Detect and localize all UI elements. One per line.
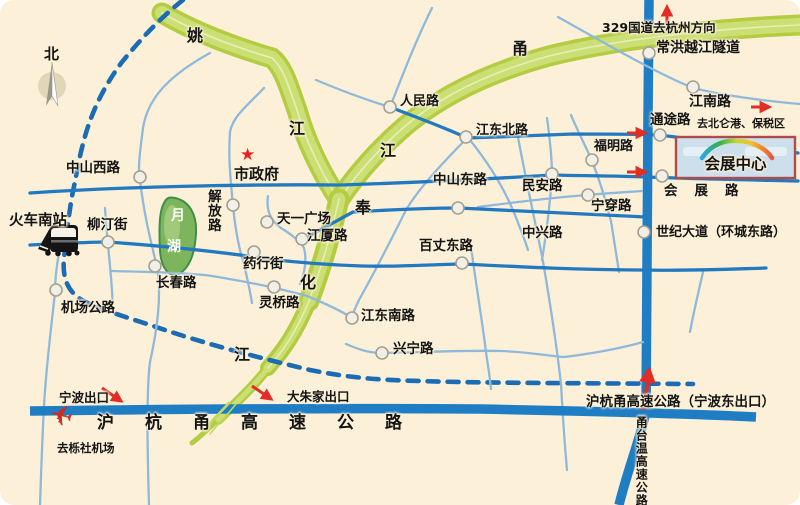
river-label-yao-jiang: 江: [289, 120, 305, 138]
label-ningchuan-road: 宁穿路: [591, 199, 632, 214]
river-label-yao: 姚: [187, 27, 203, 45]
label-g329-to-hangzhou: 329国道去杭州方向: [602, 21, 716, 35]
label-to-lishe-airport: 去栎社机场: [57, 442, 115, 455]
label-zhongshanxi-road: 中山西路: [66, 161, 120, 176]
road-north-riverbank-stub: [390, 8, 432, 107]
river-label-yong-jiang: 江: [380, 142, 396, 160]
road-jiangdong-diagonal: [470, 140, 528, 250]
road-node: [261, 216, 273, 228]
label-exhibition-center: 会展中心: [676, 156, 795, 173]
road-east-vertical-stub: [471, 247, 491, 389]
north-label: 北: [44, 46, 59, 63]
road-east-of-expressway-stub: [690, 272, 703, 332]
road-node: [376, 347, 388, 359]
road-node: [687, 81, 699, 93]
ningbo-exhibition-center-map: 北 姚 江 甬 江 奉 化 江 329国道去杭州方向 常洪越江隧道 人民路 江南…: [0, 0, 800, 505]
road-node: [586, 154, 598, 166]
road-node: [638, 226, 650, 238]
river-label-feng: 奉: [355, 199, 371, 217]
label-moon-lake-yue: 月: [171, 209, 185, 224]
label-shiji-avenue: 世纪大道（环城东路）: [656, 226, 786, 240]
label-tongtu-road: 通途路: [650, 113, 691, 128]
road-node: [134, 171, 146, 183]
label-yaohang-street: 药行街: [243, 257, 284, 272]
road-renmin-west-stub: [316, 80, 390, 107]
label-jiangxia-road: 江厦路: [307, 229, 348, 244]
label-changchun-road: 长春路: [156, 276, 197, 291]
road-node: [456, 257, 468, 269]
road-node: [460, 131, 472, 143]
label-xingning-road: 兴宁路: [393, 342, 434, 357]
label-lingqiao-road: 灵桥路: [259, 296, 300, 311]
label-tianyi-square: 天一广场: [277, 212, 331, 227]
road-node: [452, 202, 464, 214]
label-jichang-highway: 机场公路: [61, 301, 115, 316]
label-jiangdongnan-road: 江东南路: [361, 309, 415, 324]
label-zhongxing-road: 中兴路: [522, 226, 563, 241]
label-dazhujia-exit: 大朱家出口: [287, 390, 350, 404]
label-huhangyong-expressway: 沪杭甬高速公路: [97, 414, 433, 433]
label-minan-road: 民安路: [522, 179, 563, 194]
road-node: [384, 101, 396, 113]
label-jiangdongbei-road: 江东北路: [476, 124, 528, 138]
river-label-hua: 化: [300, 274, 316, 292]
road-liuting-yaohang-baizhang: [30, 242, 766, 270]
label-huizhan-road: 会展路: [664, 184, 756, 199]
label-jiangnan-road: 江南路: [689, 95, 731, 110]
boundary-dashed-line: [64, 0, 693, 384]
label-to-beilun-port: 去北仑港、保税区: [697, 118, 785, 130]
road-node: [654, 129, 666, 141]
label-south-railway-station: 火车南站: [9, 214, 67, 230]
road-node: [656, 170, 668, 182]
river-label-yong: 甬: [512, 40, 528, 58]
road-node: [227, 199, 239, 211]
road-node: [50, 284, 62, 296]
label-baizhangdong-road: 百丈东路: [419, 239, 473, 254]
road-node: [268, 281, 280, 293]
label-zhongshandong-road: 中山东路: [433, 173, 487, 188]
label-jiefang-road: 解放路: [205, 189, 220, 233]
river-label-fenghua-jiang: 江: [234, 346, 250, 364]
road-node: [643, 47, 655, 59]
label-yongtaiwen-expressway: 甬台温高速公路: [634, 416, 647, 505]
label-liuting-street: 柳汀街: [87, 218, 128, 233]
road-node: [149, 260, 161, 272]
expressway-shiji-avenue: [646, 0, 649, 412]
road-node: [346, 312, 358, 324]
label-fuming-road: 福明路: [594, 140, 633, 154]
label-changhong-tunnel: 常洪越江隧道: [656, 41, 740, 56]
label-moon-lake-hu: 湖: [167, 240, 181, 255]
arrow-dazhujia-exit: [252, 386, 271, 399]
label-renmin-road: 人民路: [400, 95, 439, 109]
label-huhangyong-east-exit: 沪杭甬高速公路（宁波东出口）: [586, 395, 775, 410]
city-hall-star-icon: ★: [240, 147, 255, 164]
road-xingning: [346, 342, 643, 357]
compass-icon: [38, 62, 66, 106]
label-city-hall: 市政府: [234, 166, 279, 183]
road-node: [102, 236, 114, 248]
